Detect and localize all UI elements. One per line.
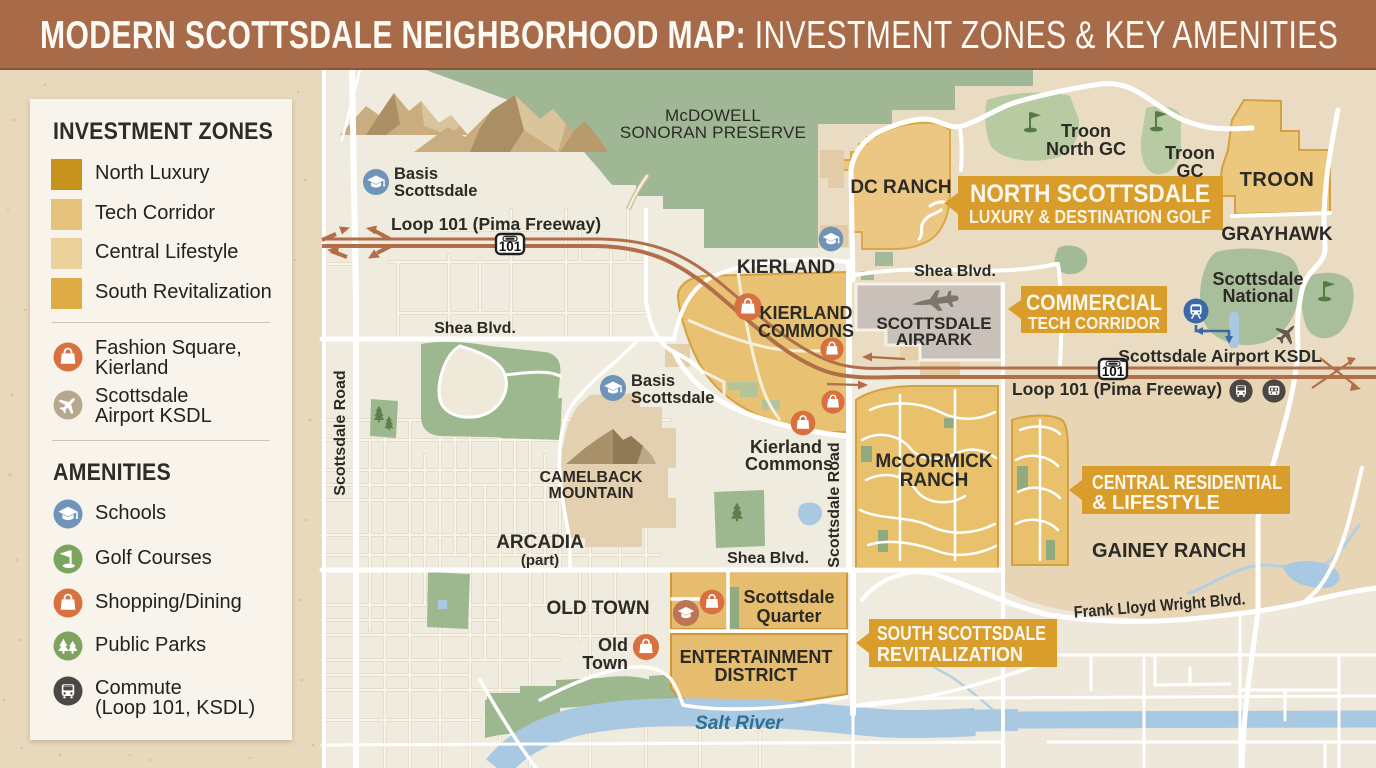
- svg-text:GRAYHAWK: GRAYHAWK: [1221, 224, 1332, 245]
- svg-text:RANCH: RANCH: [900, 470, 969, 491]
- svg-text:KIERLAND: KIERLAND: [737, 257, 835, 278]
- svg-text:Troon: Troon: [1061, 121, 1111, 141]
- svg-text:Troon: Troon: [1165, 143, 1215, 163]
- svg-text:DC RANCH: DC RANCH: [850, 177, 951, 198]
- svg-text:LUXURY & DESTINATION GOLF: LUXURY & DESTINATION GOLF: [969, 207, 1211, 227]
- svg-text:Scottsdale: Scottsdale: [631, 389, 714, 407]
- svg-text:COMMERCIAL: COMMERCIAL: [1026, 290, 1162, 315]
- svg-text:CAMELBACK: CAMELBACK: [539, 469, 643, 486]
- svg-text:Basis: Basis: [631, 372, 675, 390]
- svg-text:ENTERTAINMENT: ENTERTAINMENT: [680, 647, 833, 667]
- svg-text:AIRPARK: AIRPARK: [896, 330, 973, 349]
- svg-text:Loop 101 (Pima Freeway): Loop 101 (Pima Freeway): [391, 214, 601, 234]
- svg-text:REVITALIZATION: REVITALIZATION: [877, 644, 1023, 666]
- svg-text:Scottsdale Road: Scottsdale Road: [826, 442, 843, 567]
- svg-text:MOUNTAIN: MOUNTAIN: [548, 485, 633, 502]
- svg-text:SOUTH SCOTTSDALE: SOUTH SCOTTSDALE: [877, 623, 1046, 645]
- svg-text:OLD TOWN: OLD TOWN: [546, 598, 649, 619]
- svg-text:North GC: North GC: [1046, 139, 1126, 159]
- svg-text:Old: Old: [598, 635, 628, 655]
- svg-text:Town: Town: [582, 653, 628, 673]
- svg-text:Loop 101 (Pima Freeway): Loop 101 (Pima Freeway): [1012, 379, 1222, 399]
- svg-text:(part): (part): [521, 552, 559, 569]
- svg-text:& LIFESTYLE: & LIFESTYLE: [1092, 492, 1220, 514]
- svg-text:Quarter: Quarter: [756, 606, 821, 626]
- svg-text:Scottsdale: Scottsdale: [743, 587, 834, 607]
- svg-text:TECH CORRIDOR: TECH CORRIDOR: [1028, 313, 1160, 333]
- svg-text:CENTRAL RESIDENTIAL: CENTRAL RESIDENTIAL: [1092, 472, 1282, 494]
- svg-text:Shea Blvd.: Shea Blvd.: [727, 550, 809, 567]
- svg-text:ARCADIA: ARCADIA: [496, 532, 584, 553]
- svg-text:NORTH SCOTTSDALE: NORTH SCOTTSDALE: [970, 180, 1210, 208]
- svg-text:Scottsdale Road: Scottsdale Road: [332, 370, 349, 495]
- svg-text:Shea Blvd.: Shea Blvd.: [434, 320, 516, 337]
- svg-text:Salt River: Salt River: [695, 713, 784, 734]
- svg-text:COMMONS: COMMONS: [758, 321, 854, 341]
- svg-text:Scottsdale: Scottsdale: [394, 182, 477, 200]
- svg-text:Commons: Commons: [745, 454, 833, 474]
- svg-text:GAINEY RANCH: GAINEY RANCH: [1092, 540, 1246, 562]
- svg-text:McCORMICK: McCORMICK: [875, 451, 992, 472]
- svg-text:GC: GC: [1177, 161, 1204, 181]
- svg-text:Basis: Basis: [394, 165, 438, 183]
- svg-text:National: National: [1222, 286, 1293, 306]
- svg-text:Shea Blvd.: Shea Blvd.: [914, 263, 996, 280]
- svg-text:Scottsdale Airport KSDL: Scottsdale Airport KSDL: [1118, 346, 1322, 366]
- svg-text:TROON: TROON: [1240, 169, 1315, 191]
- svg-text:DISTRICT: DISTRICT: [715, 665, 798, 685]
- svg-text:KIERLAND: KIERLAND: [760, 303, 853, 323]
- svg-text:SONORAN PRESERVE: SONORAN PRESERVE: [620, 123, 806, 142]
